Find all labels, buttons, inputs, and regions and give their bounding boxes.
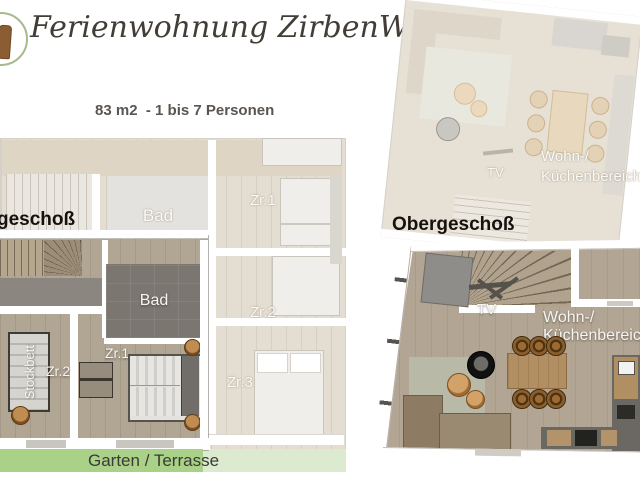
room-label-wohn-faded: Wohn-/ (541, 148, 589, 165)
cooktop (575, 430, 597, 446)
wall (70, 314, 78, 440)
terrace-band-faded (203, 449, 346, 472)
stairs (0, 240, 82, 276)
pillows (181, 356, 199, 416)
room-label-zr2: Zr.2 (46, 363, 70, 379)
wall-top (0, 230, 208, 239)
faded-dining-table (546, 90, 588, 155)
terrace-door (116, 440, 174, 448)
room-label-bad-faded: Bad (143, 206, 173, 226)
hallway-floor (0, 278, 104, 306)
kitchen-cabinet (601, 430, 617, 446)
room-label-tv-faded: TV (487, 165, 504, 180)
floor-label-ground: geschoß (0, 209, 75, 231)
stool (184, 339, 201, 356)
terrace-door (475, 449, 521, 457)
stool (11, 406, 30, 425)
kitchen-cabinet (547, 430, 571, 446)
floorplan-page: Ferienwohnung ZirbenWald 83 m2 - 1 bis 7… (0, 0, 640, 480)
dining-table (507, 353, 567, 389)
terrace-door (26, 440, 66, 448)
faded-bed-zr3 (254, 350, 324, 436)
dining-stool (546, 336, 566, 356)
stove (467, 351, 495, 379)
double-bed (128, 354, 204, 422)
room-label-wohn: Wohn-/ (543, 309, 594, 327)
faded-pillow (290, 353, 321, 373)
faded-pillow (257, 353, 288, 373)
faded-appliance (601, 35, 631, 58)
wall (571, 245, 579, 307)
bunk-bed: Stockbett (8, 332, 50, 412)
sofa (403, 395, 443, 449)
facts-size-persons: 83 m2 - 1 bis 7 Personen (95, 100, 274, 121)
faded-wall (216, 318, 346, 326)
coffee-table (466, 390, 485, 409)
kitchen-appliance (618, 361, 635, 375)
wall-right (200, 240, 208, 450)
wall (459, 305, 535, 313)
room-bad: Bad (106, 264, 202, 338)
faded-kitchenette (330, 174, 342, 264)
kitchen-sink (617, 405, 635, 419)
room-label-zr1: Zr.1 (105, 345, 129, 361)
dresser (79, 362, 113, 398)
terrace-label: Garten / Terrasse (88, 451, 219, 471)
sofa-chaise (439, 413, 511, 451)
stool (184, 414, 201, 431)
duvet (130, 356, 180, 386)
dining-stool (546, 389, 566, 409)
sideboard (421, 253, 474, 308)
faded-cabinet (551, 18, 608, 51)
ground-floor-plan: Bad Stockbett Zr.2 Zr.1 (0, 230, 214, 450)
door (607, 301, 633, 306)
faded-bed-zr2 (272, 256, 340, 316)
room-label-stockbett: Stockbett (22, 345, 37, 399)
room-label-kueche-faded: Küchenbereich (541, 168, 640, 185)
room-label-tv: TV (477, 301, 496, 318)
upper-floor-plan: TV Wohn-/ Küchenbereich (383, 243, 640, 480)
faded-headboard (262, 138, 342, 166)
room-label-zr3-faded: Zr.3 (227, 374, 253, 391)
floor-label-upper: Obergeschoß (392, 214, 514, 236)
page-title: Ferienwohnung ZirbenWald (30, 10, 454, 45)
room-label-bad: Bad (140, 292, 168, 310)
wall (0, 306, 104, 314)
faded-wall (216, 248, 346, 256)
room-label-zr1-faded: Zr.1 (250, 192, 276, 209)
stairs-fan (44, 240, 82, 276)
duvet (130, 387, 180, 416)
